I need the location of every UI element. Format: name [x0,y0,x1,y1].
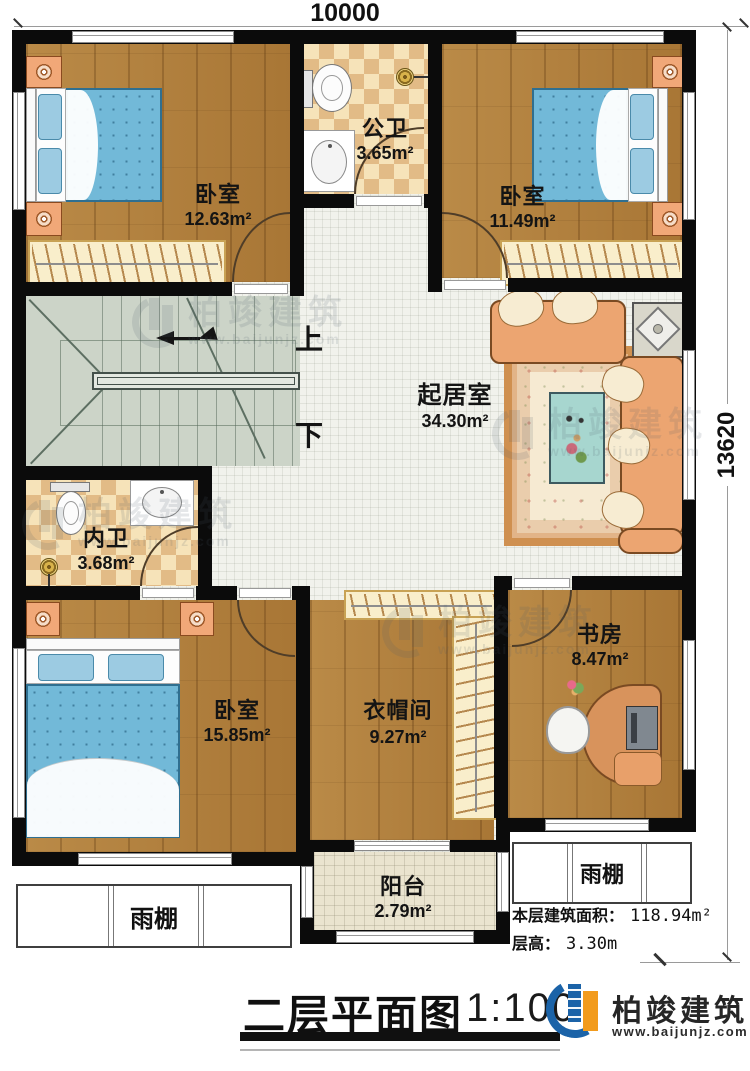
title-underline-thin [240,1049,560,1051]
sofa-armrest [618,528,684,554]
door-opening [444,280,506,290]
bed-pillow [108,654,164,681]
logo-building-orange [583,991,598,1031]
floor-area-label: 本层建筑面积： [512,902,624,926]
room-label-private-bathroom: 内卫 [52,526,160,551]
dimension-width-label: 10000 [295,0,395,26]
bed-headboard [26,88,36,202]
bed-blanket [596,90,628,200]
nightstand [180,602,214,636]
room-area-living-room: 34.30m² [395,412,515,432]
room-label-bedroom-top-right: 卧室 [450,184,595,209]
room-area-bedroom-top-left: 12.63m² [145,210,291,230]
floor-plan: 柏竣建筑 www.baijunjz.com 柏竣建筑 www.baijunjz.… [0,0,750,1071]
wall-segment [428,208,442,292]
door-opening [234,284,288,294]
window [516,31,664,43]
bed-pillow [38,94,62,140]
room-area-balcony: 2.79m² [354,902,452,922]
balcony-railing-window [336,931,474,943]
nightstand [26,602,60,636]
room-label-bedroom-top-left: 卧室 [145,182,291,207]
floor-area-info: 本层建筑面积： 118.94m² [512,902,712,926]
wall-segment [494,586,508,818]
wall-segment [12,586,140,600]
window [78,853,232,865]
wall-segment [198,466,212,600]
window [683,350,695,500]
nightstand [26,202,62,236]
room-area-public-bathroom: 3.65m² [330,144,440,164]
canopy-left: 雨棚 [16,884,292,948]
stair-direction-arrow [156,331,174,345]
door-opening [142,588,194,598]
wall-segment [290,44,304,208]
wall-segment [290,208,304,296]
wall-lamp-icon [396,68,414,86]
window [72,31,234,43]
nightstand [26,56,62,88]
wall-segment [310,840,354,852]
sink-basin [142,487,182,518]
wall-segment [450,840,496,852]
wall-segment [494,576,512,590]
dimension-tick [653,953,666,966]
coffee-table [549,392,605,484]
window [545,819,649,831]
stairs-up-label: 上 [292,318,326,358]
wall-segment [290,194,354,208]
floor-height-value: 3.30m [566,934,617,954]
logo-building-blue [568,984,581,1022]
wardrobe [28,240,226,286]
bed-pillow [630,148,654,194]
desk-chair [546,706,590,754]
dimension-extension-line [640,962,740,963]
dimension-line-right [727,30,728,960]
room-area-private-bathroom: 3.68m² [52,554,160,574]
canopy-right-label: 雨棚 [514,844,690,902]
room-label-study: 书房 [552,622,648,647]
door-opening [514,578,570,588]
room-label-public-bathroom: 公卫 [330,116,440,141]
window [497,852,509,912]
room-label-bedroom-bottom-left: 卧室 [164,698,310,723]
wall-segment [12,466,212,480]
bed-blanket [27,758,179,837]
stairs-down-label: 下 [292,414,326,454]
bed-pillow [38,654,94,681]
bed-pillow [38,148,62,194]
room-area-bedroom-bottom-left: 15.85m² [164,726,310,746]
wall-segment [572,576,696,590]
stair-handrail [92,372,300,390]
window [301,866,313,918]
title-underline-thick [240,1032,560,1041]
canopy-right: 雨棚 [512,842,692,904]
company-logo-icon [546,982,608,1040]
room-area-bedroom-top-right: 11.49m² [450,212,595,232]
desk-side-table [614,752,662,786]
bed-pillow [630,94,654,140]
bed-headboard [26,638,180,650]
door-opening [356,196,422,206]
wall-segment [12,282,232,296]
floor-area-value: 118.94m² [630,906,712,926]
window [354,841,450,851]
bed-headboard [658,88,668,202]
canopy-left-label: 雨棚 [18,886,290,946]
toilet-bowl [312,64,352,112]
room-label-balcony: 阳台 [360,874,446,899]
stair-arrow-tail [174,337,200,340]
window [13,92,25,210]
room-area-study: 8.47m² [548,650,652,670]
room-label-cloakroom: 衣帽间 [330,698,466,723]
corner-table-lamp-center [653,324,663,334]
bed-blanket [66,90,98,200]
flower-pot [564,676,586,698]
door-opening [239,588,291,598]
dimension-line-top [14,26,746,27]
window [683,92,695,220]
company-website: www.baijunjz.com [612,1024,748,1039]
wall-segment [196,586,237,600]
wall-segment [508,278,696,292]
wall-segment [424,194,442,208]
room-label-living-room: 起居室 [395,382,515,410]
window [683,640,695,770]
window [13,648,25,818]
computer-monitor [626,706,658,750]
floor-height-label: 层高： [512,930,560,954]
floor-height-info: 层高： 3.30m [512,930,617,954]
room-area-cloakroom: 9.27m² [330,728,466,748]
dimension-height-label: 13620 [707,404,747,486]
